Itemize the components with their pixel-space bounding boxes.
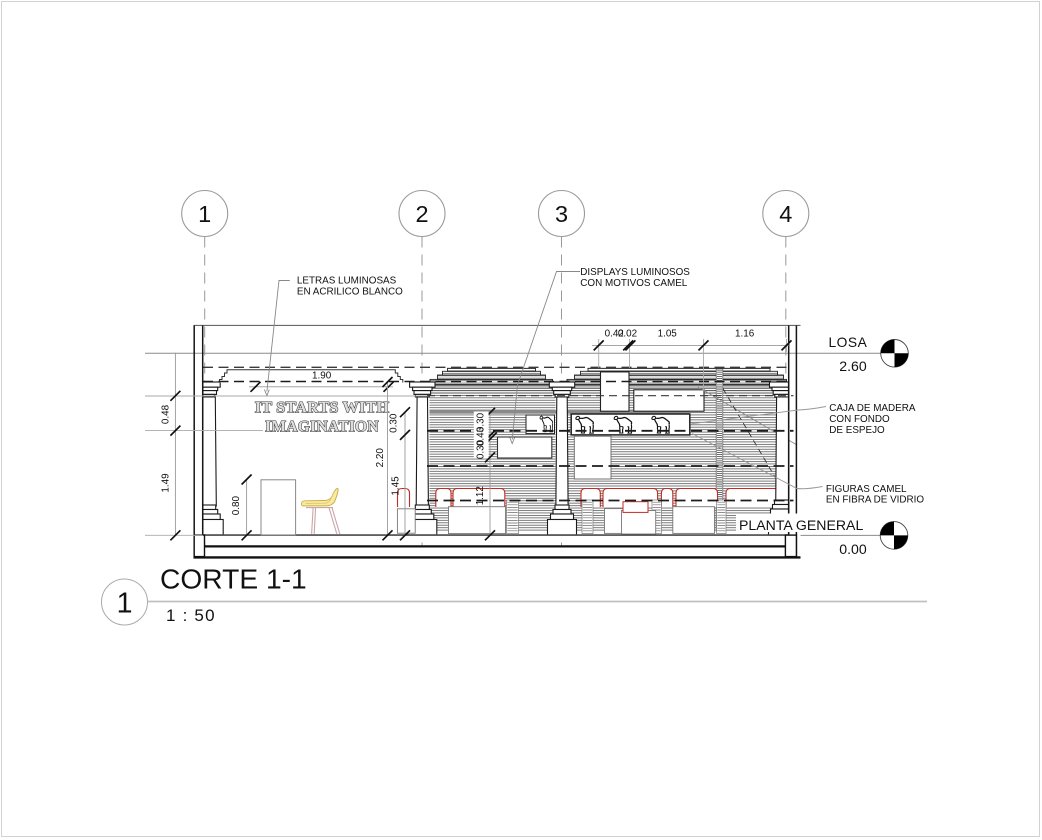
svg-text:CAJA DE MADERA: CAJA DE MADERA <box>829 403 916 414</box>
svg-text:2.60: 2.60 <box>839 358 867 374</box>
svg-text:0.48: 0.48 <box>160 404 171 424</box>
svg-text:IT STARTS WITH: IT STARTS WITH <box>255 399 390 417</box>
svg-text:1.05: 1.05 <box>658 329 678 340</box>
svg-text:1.12: 1.12 <box>475 486 486 505</box>
svg-text:0.00: 0.00 <box>839 541 867 557</box>
svg-text:DISPLAYS LUMINOSOS: DISPLAYS LUMINOSOS <box>580 267 690 278</box>
svg-text:1.49: 1.49 <box>160 473 171 493</box>
svg-text:1: 1 <box>117 587 133 619</box>
svg-text:4: 4 <box>779 201 792 227</box>
svg-text:DE ESPEJO: DE ESPEJO <box>829 425 885 436</box>
svg-text:EN ACRILICO BLANCO: EN ACRILICO BLANCO <box>297 286 403 297</box>
svg-text:CON FONDO: CON FONDO <box>829 414 890 425</box>
svg-text:1.45: 1.45 <box>391 476 402 496</box>
svg-text:3: 3 <box>555 201 568 227</box>
svg-text:1 : 50: 1 : 50 <box>166 606 216 625</box>
svg-text:2.20: 2.20 <box>375 448 386 468</box>
svg-text:CON MOTIVOS CAMEL: CON MOTIVOS CAMEL <box>580 278 687 289</box>
svg-text:EN FIBRA DE VIDRIO: EN FIBRA DE VIDRIO <box>826 495 925 506</box>
svg-text:PLANTA GENERAL: PLANTA GENERAL <box>739 517 863 533</box>
svg-text:LOSA: LOSA <box>829 335 868 350</box>
svg-text:0.30: 0.30 <box>475 439 486 459</box>
svg-text:1: 1 <box>198 201 211 227</box>
svg-text:2: 2 <box>415 201 428 227</box>
svg-text:1.16: 1.16 <box>735 329 755 340</box>
svg-text:LETRAS LUMINOSAS: LETRAS LUMINOSAS <box>297 276 397 287</box>
svg-text:0.30: 0.30 <box>389 413 400 433</box>
svg-text:0.02: 0.02 <box>618 329 637 340</box>
svg-text:IMAGINATION: IMAGINATION <box>265 419 379 436</box>
svg-text:1.90: 1.90 <box>312 370 332 381</box>
svg-text:FIGURAS CAMEL: FIGURAS CAMEL <box>826 484 907 495</box>
svg-text:0.80: 0.80 <box>231 495 242 515</box>
svg-text:CORTE 1-1: CORTE 1-1 <box>160 563 307 595</box>
